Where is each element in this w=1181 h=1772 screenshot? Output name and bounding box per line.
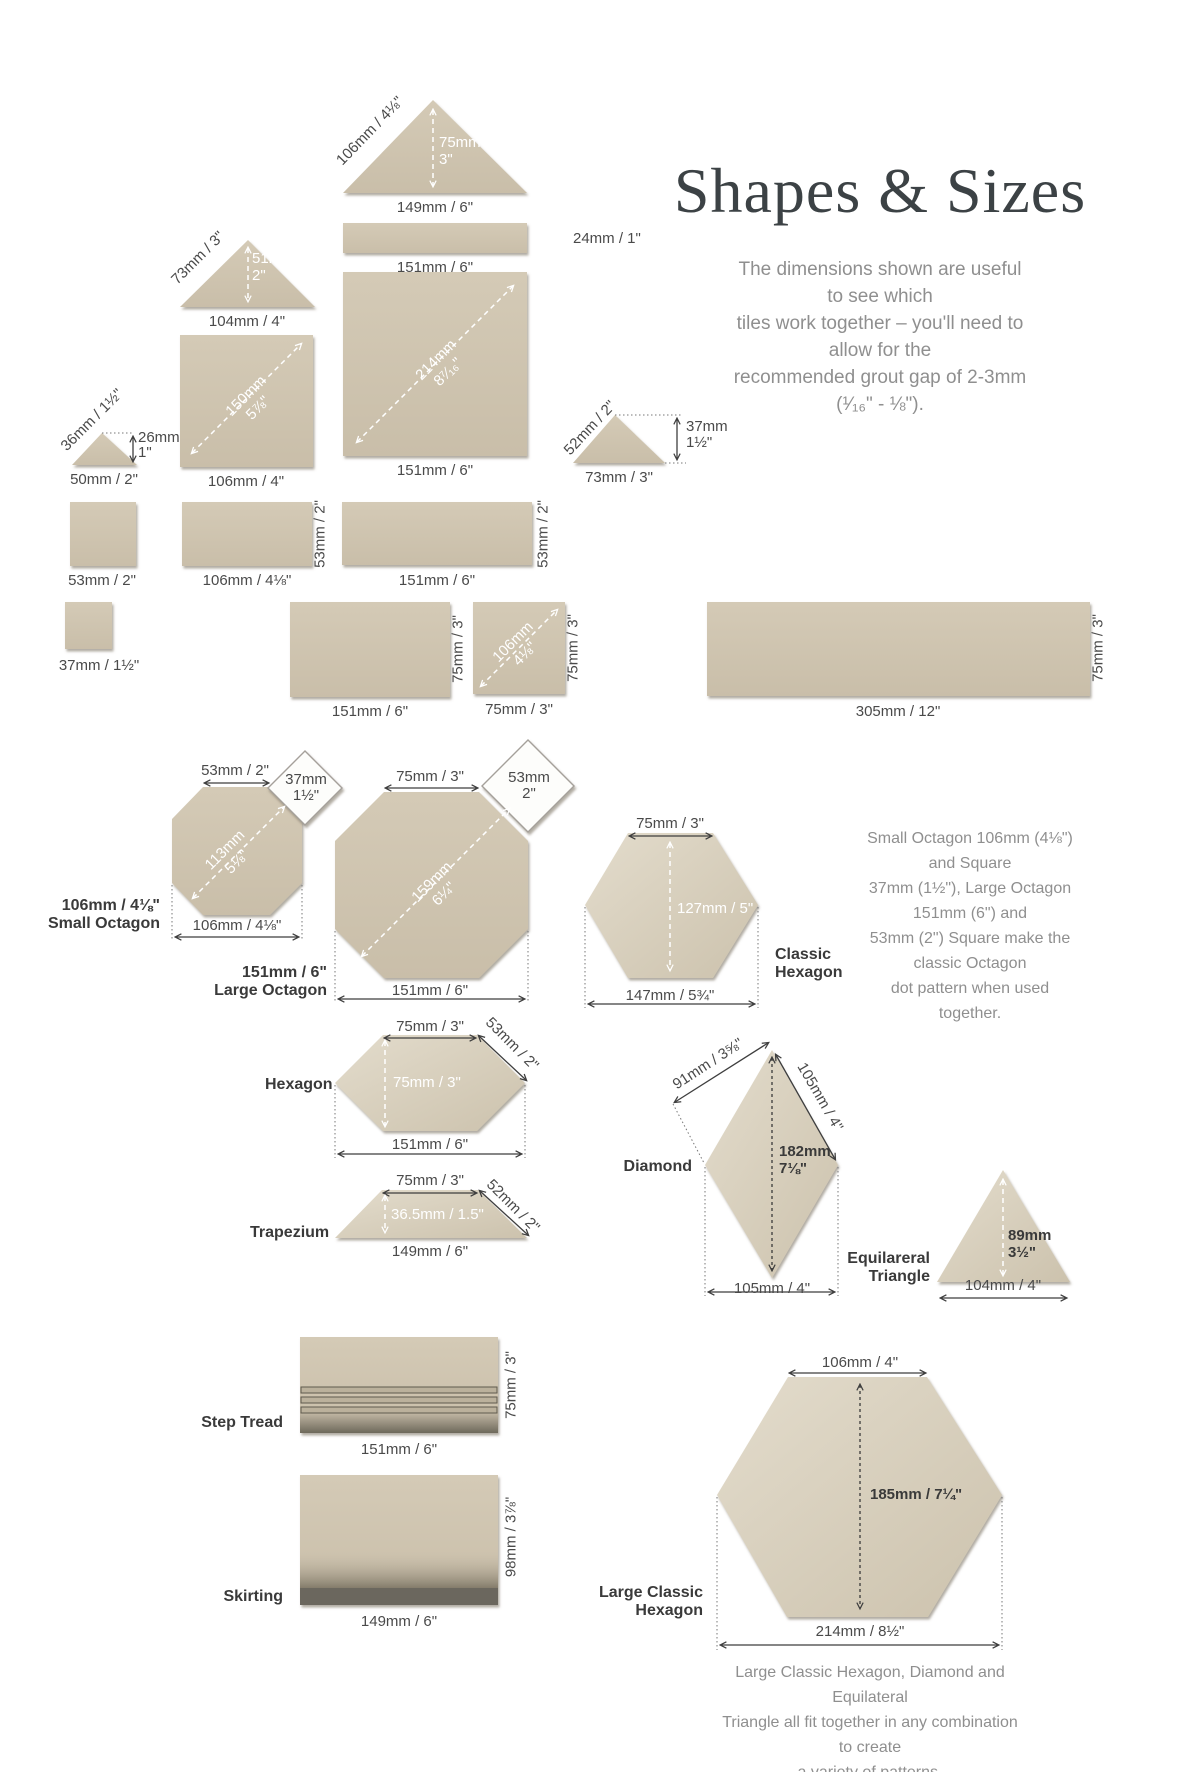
tile-rect-151x75 [290, 602, 450, 697]
dim-skirting-side: 98mm / 3⅞" [503, 1497, 520, 1577]
dim-tri73-height: 37mm 1½" [686, 419, 728, 451]
dim-sq75-side: 75mm / 3" [565, 614, 582, 682]
dim-sq53-base: 53mm / 2" [68, 572, 136, 589]
dim-large-classic-hexagon-height: 185mm / 7¼" [870, 1486, 962, 1503]
dim-small-octagon-top: 53mm / 2" [201, 762, 269, 779]
hexagon-label: Hexagon [265, 1076, 333, 1094]
step-tread-groove [301, 1397, 497, 1403]
trapezium-label: Trapezium [250, 1224, 329, 1242]
dim-classic-hexagon-height: 127mm / 5" [677, 900, 753, 917]
dim-tri73-base: 73mm / 3" [585, 469, 653, 486]
diamond-label: Diamond [624, 1158, 692, 1176]
skirting-strip [300, 1588, 498, 1605]
dim-tri149-height: 75mm 3" [439, 134, 481, 168]
page-title: Shapes & Sizes [674, 156, 1086, 226]
tile-rect-106x53 [182, 502, 312, 566]
page-subtitle: The dimensions shown are useful to see w… [730, 256, 1031, 418]
tile-square-53 [70, 502, 136, 566]
dim-rect106x53-side: 53mm / 2" [312, 500, 329, 568]
dim-hexagon-top: 75mm / 3" [396, 1018, 464, 1035]
dim-large-classic-hexagon-top: 106mm / 4" [822, 1354, 898, 1371]
large-classic-hexagon-label: Large Classic Hexagon [599, 1584, 703, 1620]
dim-hexagon-width: 151mm / 6" [392, 1136, 468, 1153]
dim-diamond-width: 105mm / 4" [734, 1280, 810, 1297]
dim-tri104-base: 104mm / 4" [209, 313, 285, 330]
classic-hexagon-label: Classic Hexagon [775, 946, 843, 982]
tile-triangle-149 [343, 100, 527, 193]
dim-tri149-base: 149mm / 6" [397, 199, 473, 216]
dim-tri50-base: 50mm / 2" [70, 471, 138, 488]
dim-step-tread-side: 75mm / 3" [503, 1351, 520, 1419]
dim-sq151-base: 151mm / 6" [397, 462, 473, 479]
step-tread-nose [300, 1412, 498, 1433]
dim-large-classic-hexagon-width: 214mm / 8½" [816, 1623, 905, 1640]
tile-rect-305x75 [707, 602, 1090, 696]
dim-trapezium-base: 149mm / 6" [392, 1243, 468, 1260]
dim-sq106-base: 106mm / 4" [208, 473, 284, 490]
dim-tri50-height: 26mm 1" [138, 430, 180, 460]
dim-sq75-base: 75mm / 3" [485, 701, 553, 718]
skirting-label: Skirting [223, 1588, 283, 1606]
dim-rect305-side: 75mm / 3" [1090, 614, 1107, 682]
dim-classic-hexagon-width: 147mm / 5¾" [626, 987, 715, 1004]
tile-square-37 [65, 602, 112, 649]
skirting-shadow [300, 1550, 498, 1588]
dim-rect151x75-side: 75mm / 3" [450, 615, 467, 683]
bottom-note: Large Classic Hexagon, Diamond and Equil… [715, 1660, 1026, 1772]
dim-tri104-height: 51mm 2" [252, 250, 294, 284]
dim-step-tread-base: 151mm / 6" [361, 1441, 437, 1458]
dim-equilateral-height: 89mm 3½" [1008, 1227, 1051, 1261]
dim-small-octagon-width: 106mm / 4⅛" [193, 917, 282, 934]
dim-diamond-height: 182mm 7⅛" [779, 1143, 831, 1177]
dim-trapezium-height: 36.5mm / 1.5" [391, 1206, 484, 1223]
dim-border-side: 24mm / 1" [573, 230, 641, 247]
dim-large-octagon-top: 75mm / 3" [396, 768, 464, 785]
dim-rect151x53-side: 53mm / 2" [535, 500, 552, 568]
dim-rect305-base: 305mm / 12" [856, 703, 941, 720]
large-octagon-label: 151mm / 6" Large Octagon [214, 964, 327, 1000]
dim-equilateral-base: 104mm / 4" [965, 1277, 1041, 1294]
dim-small-octagon-square: 37mm 1½" [285, 772, 327, 804]
dim-hexagon-height: 75mm / 3" [393, 1074, 461, 1091]
shapes-and-sizes-page: Shapes & Sizes The dimensions shown are … [0, 0, 1181, 1772]
tile-rect-151x53 [342, 502, 532, 565]
dim-rect106x53-base: 106mm / 4⅛" [203, 572, 292, 589]
dim-rect151x53-base: 151mm / 6" [399, 572, 475, 589]
dim-large-octagon-width: 151mm / 6" [392, 982, 468, 999]
step-tread-label: Step Tread [201, 1414, 283, 1432]
dim-classic-hexagon-top: 75mm / 3" [636, 815, 704, 832]
octagon-note: Small Octagon 106mm (4⅛") and Square 37m… [865, 826, 1076, 1026]
small-octagon-label: 106mm / 4⅛" Small Octagon [48, 897, 160, 933]
step-tread-groove [301, 1407, 497, 1413]
dim-skirting-base: 149mm / 6" [361, 1613, 437, 1630]
dim-rect151x75-base: 151mm / 6" [332, 703, 408, 720]
step-tread-groove [301, 1387, 497, 1393]
dim-large-octagon-square: 53mm 2" [508, 770, 550, 802]
equilateral-triangle-label: Equilareral Triangle [847, 1250, 930, 1286]
dim-trapezium-top: 75mm / 3" [396, 1172, 464, 1189]
dim-sq37-base: 37mm / 1½" [59, 657, 139, 674]
dim-border-base: 151mm / 6" [397, 259, 473, 276]
tile-border-151x24 [343, 223, 527, 253]
